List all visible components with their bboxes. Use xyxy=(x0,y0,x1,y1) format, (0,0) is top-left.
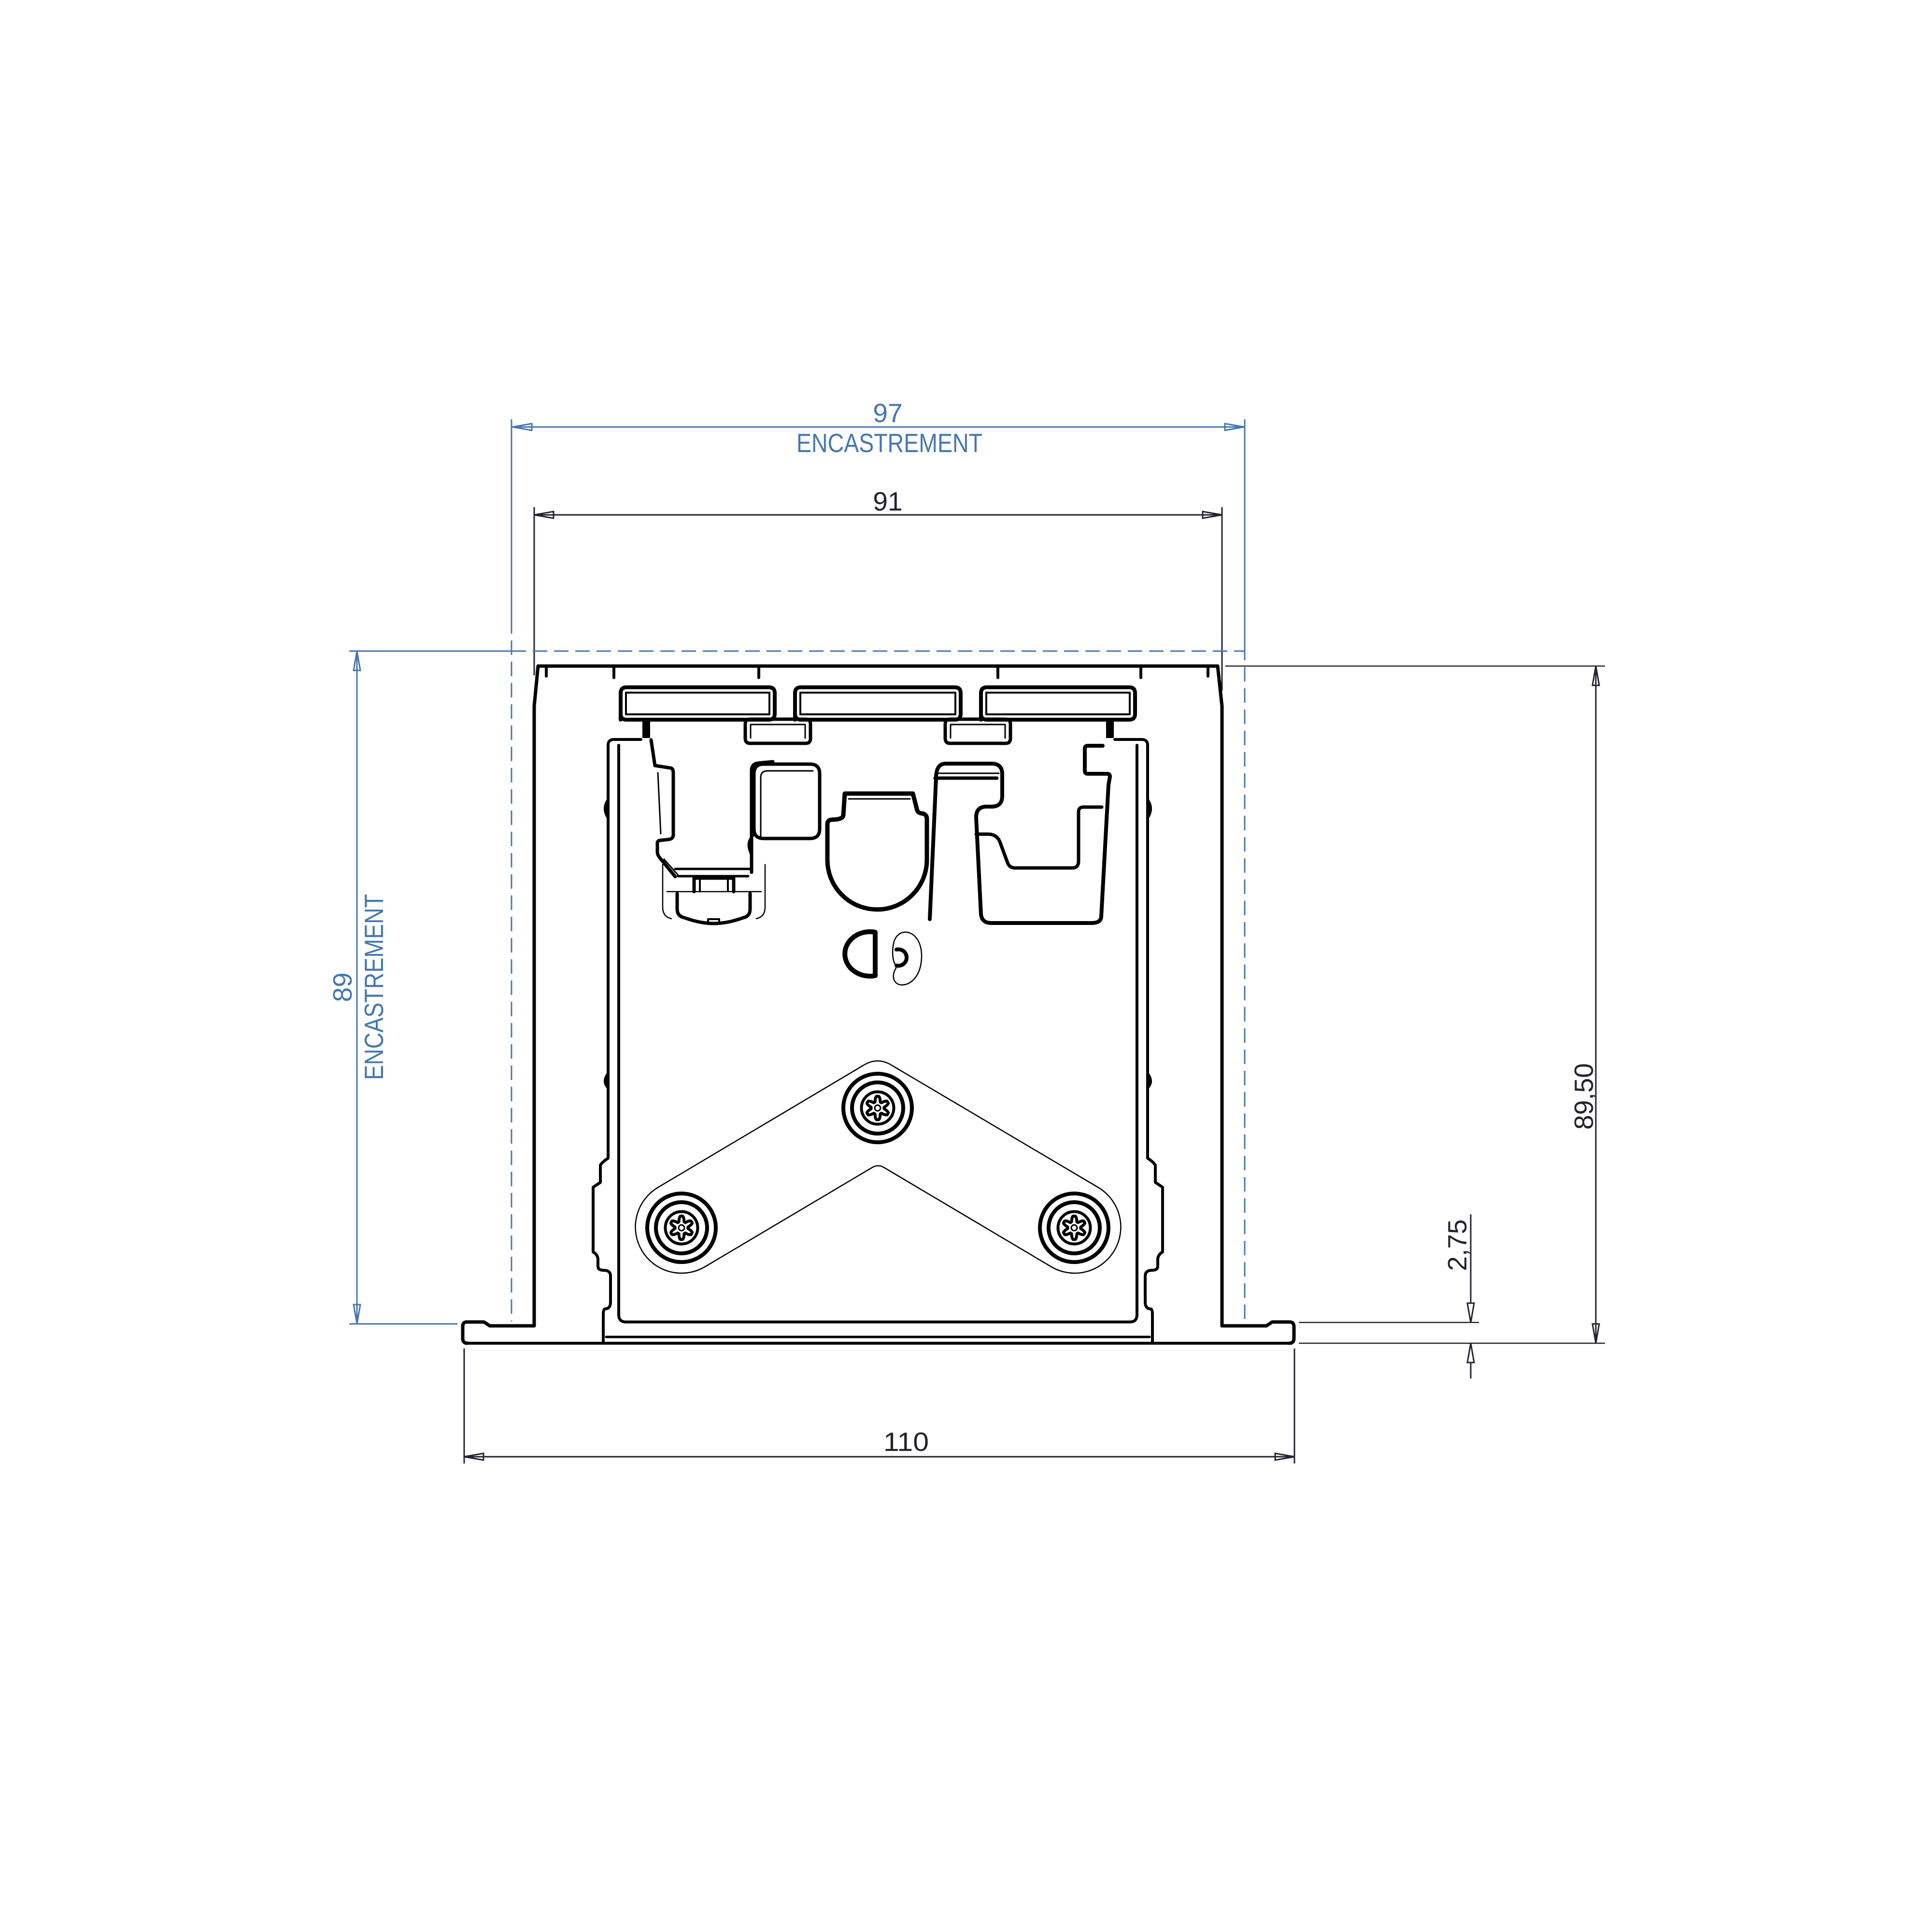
svg-text:ENCASTREMENT: ENCASTREMENT xyxy=(796,428,982,458)
svg-text:89,50: 89,50 xyxy=(1569,1063,1599,1130)
svg-text:91: 91 xyxy=(873,486,902,516)
svg-text:2,75: 2,75 xyxy=(1442,1219,1472,1271)
svg-text:97: 97 xyxy=(873,398,902,428)
svg-text:ENCASTREMENT: ENCASTREMENT xyxy=(359,894,389,1080)
svg-text:89: 89 xyxy=(327,972,357,1002)
svg-text:110: 110 xyxy=(883,1427,929,1457)
